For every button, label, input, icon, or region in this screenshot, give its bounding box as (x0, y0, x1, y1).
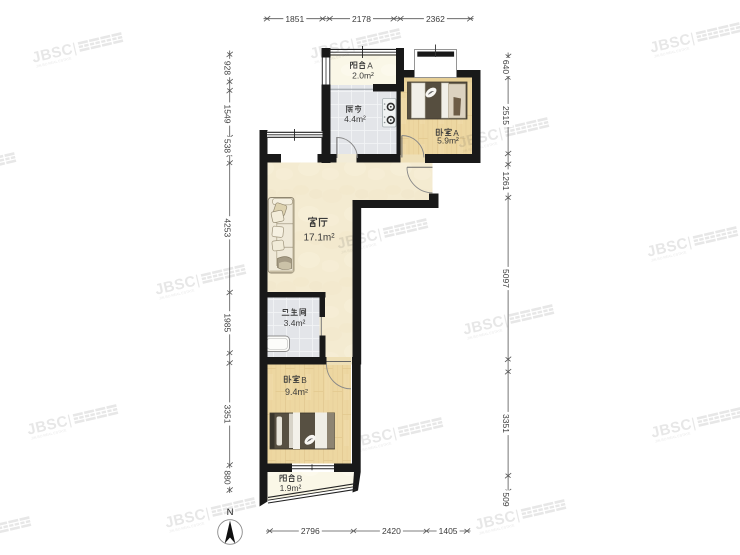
svg-text:2.0m²: 2.0m² (352, 71, 374, 81)
svg-text:4253: 4253 (222, 218, 232, 237)
svg-text:928: 928 (222, 61, 232, 75)
svg-text:1405: 1405 (439, 526, 458, 536)
svg-text:5.9m²: 5.9m² (437, 136, 459, 146)
svg-text:B: B (301, 375, 307, 385)
svg-text:4.4m²: 4.4m² (344, 114, 366, 124)
svg-text:509: 509 (501, 492, 511, 506)
svg-text:1549: 1549 (222, 105, 232, 124)
svg-text:1851: 1851 (285, 14, 304, 24)
svg-text:N: N (227, 507, 234, 518)
svg-text:2178: 2178 (352, 14, 371, 24)
svg-text:2796: 2796 (301, 526, 320, 536)
svg-text:5097: 5097 (501, 269, 511, 288)
svg-text:A: A (367, 61, 373, 71)
svg-text:1985: 1985 (222, 313, 232, 332)
svg-text:2362: 2362 (426, 14, 445, 24)
svg-text:1.9m²: 1.9m² (280, 483, 302, 493)
svg-text:9.4m²: 9.4m² (285, 387, 308, 397)
svg-text:640: 640 (501, 60, 511, 74)
svg-text:538: 538 (222, 139, 232, 153)
svg-text:2515: 2515 (501, 106, 511, 125)
svg-text:1261: 1261 (501, 172, 511, 191)
svg-text:3351: 3351 (501, 414, 511, 433)
svg-text:17.1m²: 17.1m² (303, 233, 335, 244)
svg-text:3.4m²: 3.4m² (284, 318, 306, 328)
svg-text:880: 880 (222, 470, 232, 484)
svg-text:3351: 3351 (222, 405, 232, 424)
svg-text:2420: 2420 (382, 526, 401, 536)
